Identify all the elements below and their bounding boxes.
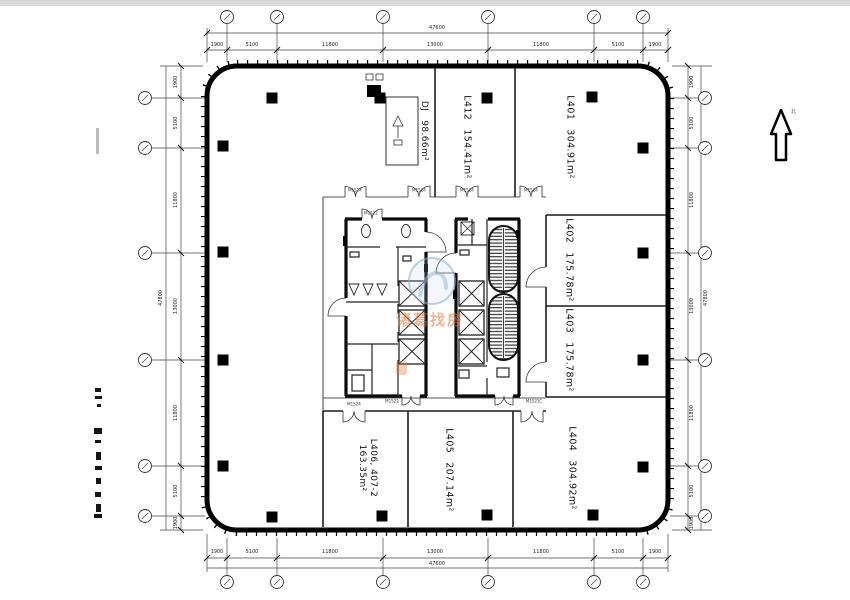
watermark-fragment [396,361,407,375]
dim-seg: 11800 [322,42,338,48]
room-label-l406: L406, 407-2 163.35m² [356,439,378,497]
dim-seg: 1900 [211,549,224,555]
dim-seg: 11800 [689,192,695,208]
dim-seg: 1900 [649,42,662,48]
dim-seg: 5100 [173,485,179,498]
door-tag: M1524 [524,188,538,193]
dim-seg: 1900 [173,517,179,530]
watermark-logo-icon [409,258,455,304]
dim-seg: 5100 [173,117,179,130]
dim-seg: 1900 [689,76,695,89]
door-tag: M1521C [526,399,542,404]
dim-total-top: 47600 [429,25,445,31]
door-tag: M1522 [364,211,378,216]
dim-seg: 5100 [612,42,625,48]
room-label-dj: DJ98.66m² [419,101,429,161]
dim-seg: 13000 [173,298,179,314]
door-tag: M1524 [348,188,362,193]
north-arrow-icon [771,110,791,160]
north-arrow-label: 北 [791,108,796,115]
dim-total-left: 47800 [158,290,164,306]
dim-seg: 5100 [246,42,259,48]
dim-seg: 5100 [246,549,259,555]
dim-seg: 13000 [689,298,695,314]
room-label-l405: L405207.14m² [444,428,455,512]
dim-seg: 5100 [612,549,625,555]
dim-seg: 5100 [689,117,695,130]
room-label-l403: L403175.78m² [564,308,575,392]
door-tag: M1524 [412,188,426,193]
door-tag: M1524 [347,402,361,407]
dim-seg: 13000 [427,549,443,555]
room-label-l404: L404304.92m² [567,426,578,510]
room-label-l402: L402175.78m² [564,218,575,302]
dim-seg: 11800 [322,549,338,555]
dim-seg: 1900 [689,517,695,530]
floor-plan-canvas: DJ98.66m² L412154.41m² L401304.91m² L402… [0,0,850,600]
dim-seg: 1900 [649,549,662,555]
door-tag: M1524 [460,188,474,193]
dim-seg: 11800 [689,405,695,421]
room-label-l412: L412154.41m² [462,95,473,179]
room-label-l401: L401304.91m² [565,95,576,179]
dim-seg: 11800 [533,42,549,48]
dim-seg: 11800 [173,192,179,208]
dim-seg: 5100 [689,485,695,498]
dim-seg: 1900 [173,76,179,89]
floor-plan-drawing [0,0,850,600]
dim-seg: 11800 [533,549,549,555]
watermark-text: 诸葛找房 [396,309,464,330]
dim-total-bottom: 47600 [429,561,445,567]
cropped-text-fragments [94,128,102,518]
dim-seg: 1900 [211,42,224,48]
dim-seg: 11800 [173,405,179,421]
door-tag: M1522 [385,399,399,404]
dim-total-right: 47800 [703,290,709,306]
dim-seg: 13000 [427,42,443,48]
